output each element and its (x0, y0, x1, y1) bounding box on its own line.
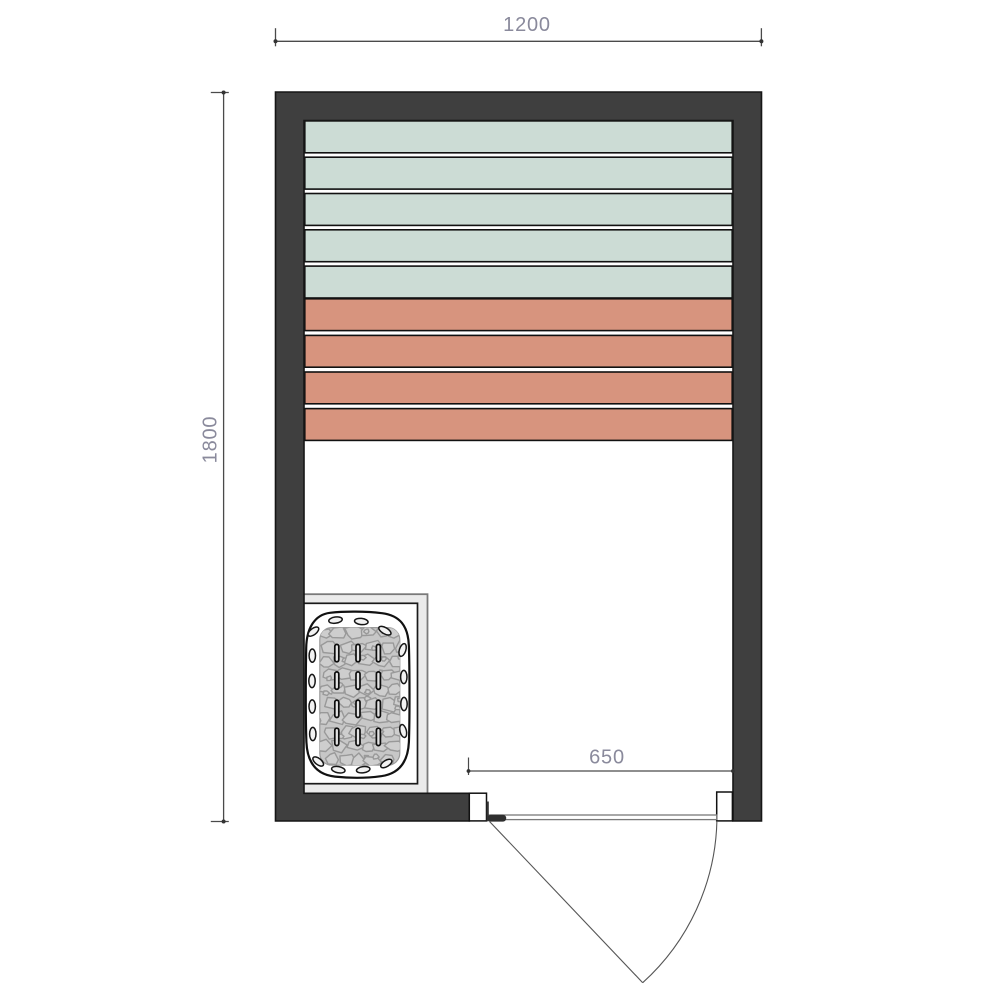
svg-text:1800: 1800 (200, 416, 222, 464)
svg-text:650: 650 (589, 747, 625, 769)
svg-text:1200: 1200 (503, 14, 551, 36)
